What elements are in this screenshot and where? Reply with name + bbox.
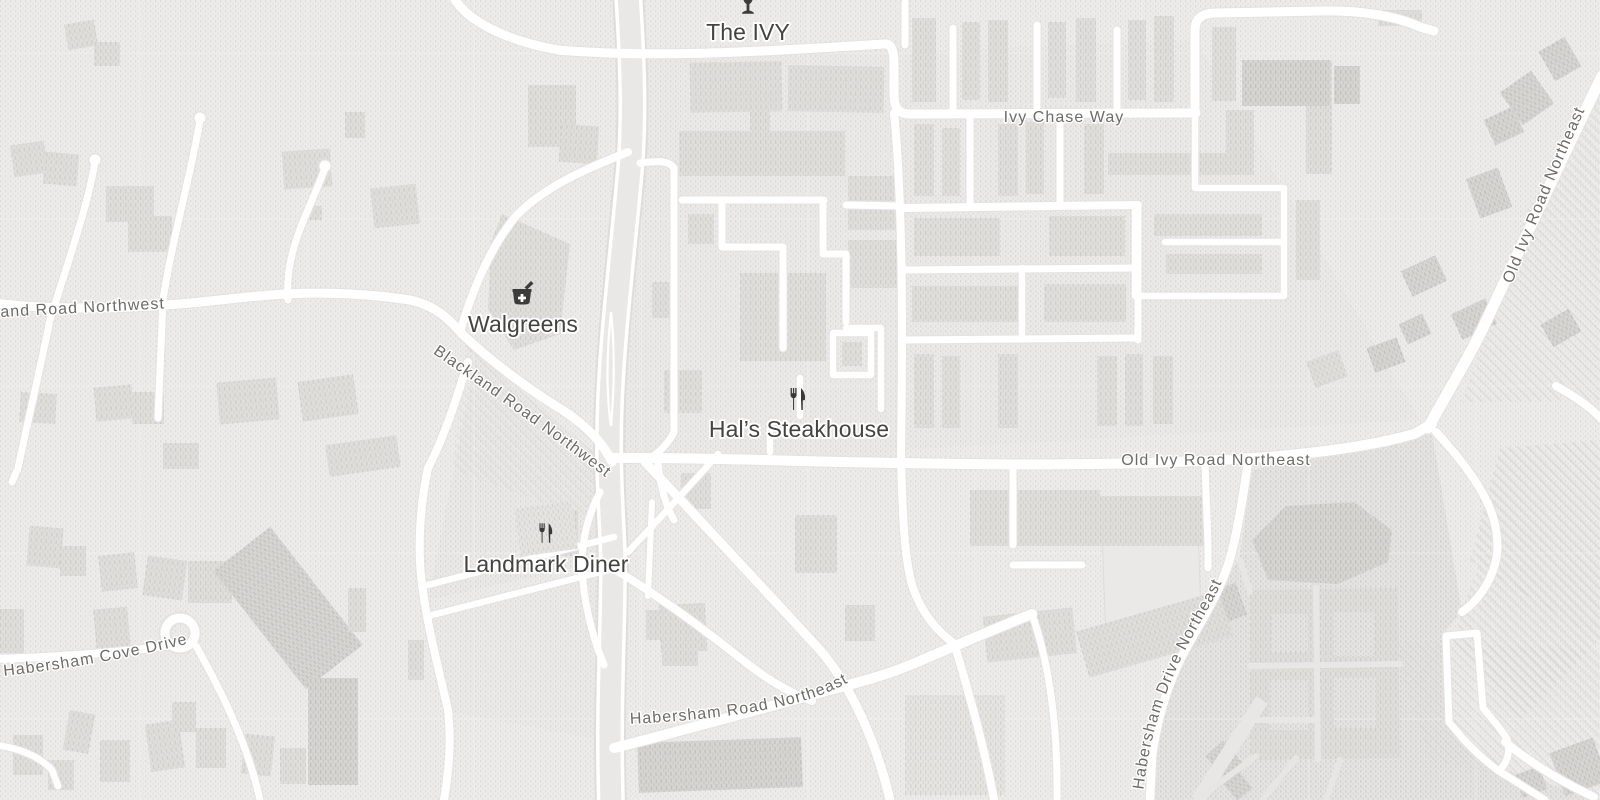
svg-text:Ivy Chase Way: Ivy Chase Way bbox=[1004, 109, 1125, 126]
svg-text:Walgreens: Walgreens bbox=[468, 311, 578, 337]
svg-text:Hal’s Steakhouse: Hal’s Steakhouse bbox=[709, 416, 889, 442]
svg-text:Old Ivy Road Northeast: Old Ivy Road Northeast bbox=[1121, 452, 1310, 469]
svg-text:The IVY: The IVY bbox=[706, 19, 790, 45]
svg-text:Landmark Diner: Landmark Diner bbox=[463, 551, 628, 577]
